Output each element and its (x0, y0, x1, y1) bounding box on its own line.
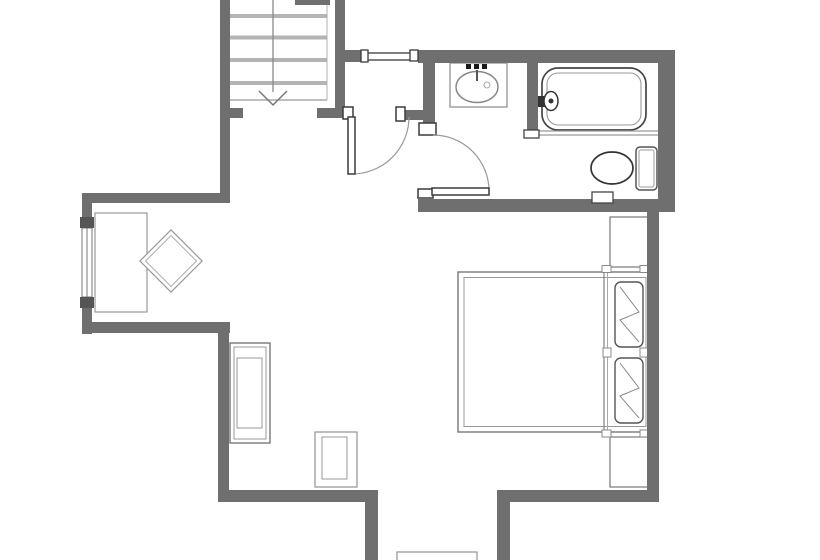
bathroom-right-wall (658, 50, 675, 212)
room-bottom-right-wall (497, 490, 659, 502)
bathroom-wall-niche (592, 192, 613, 203)
bed-tick-mid-left (603, 348, 611, 357)
bathroom-left-wall (423, 53, 435, 125)
bath-door-jamb-top (419, 123, 436, 135)
nightstand-bottom (610, 437, 648, 487)
staircase (228, 0, 327, 105)
sink-faucet-dot-1 (466, 64, 471, 69)
stair-tread-3 (228, 58, 327, 62)
tub-partition-cap (524, 130, 539, 138)
stair-top-stub-wall (295, 0, 330, 5)
alcove-bottom-wall (82, 322, 230, 333)
desk (95, 213, 147, 312)
stair-direction-arrow (259, 91, 287, 105)
bathroom-top-wall (418, 50, 675, 63)
bathroom-bottom-wall (418, 199, 675, 212)
bathroom (450, 63, 658, 190)
tub-faucet-dot (549, 99, 554, 104)
living-area (95, 213, 477, 560)
left-mid-wall (218, 330, 229, 502)
hall-door-leaf (348, 117, 355, 174)
left-wall-upper (82, 203, 92, 219)
hall-stub-wall-left (230, 108, 243, 118)
passthrough-cap-right (410, 50, 418, 61)
pillow-2-outline (615, 358, 643, 423)
chair-rotated-outer (140, 230, 202, 292)
bed-tick-bottom-left (602, 430, 611, 437)
alcove-top-wall (82, 193, 230, 203)
bath-door-leaf (432, 188, 489, 195)
hall-door-jamb-right (396, 107, 405, 121)
bedroom (458, 217, 650, 487)
stair-tread-4 (228, 81, 327, 85)
tub-partition-wall (527, 60, 538, 137)
bed-tick-mid-right (640, 348, 648, 357)
opening-left-wall (365, 490, 378, 560)
bath-door-swing-arc (433, 135, 489, 191)
toilet-bowl (591, 152, 633, 184)
room-bottom-left-wall (218, 490, 378, 502)
stair-tread-2 (228, 36, 327, 40)
entry-threshold (397, 552, 477, 560)
sink-faucet-dot-3 (482, 64, 487, 69)
window-jamb-bottom (80, 297, 94, 308)
floor-plan-drawing (0, 0, 820, 560)
bath-door-jamb-bottom (418, 189, 433, 198)
pillow-1-outline (615, 282, 643, 347)
stair-right-wall (335, 0, 345, 118)
floor-plan-stage (0, 0, 820, 560)
hall-stub-wall-right (317, 108, 345, 118)
bedroom-right-wall (647, 205, 659, 502)
sink-faucet-dot-2 (474, 64, 479, 69)
nightstand-top (610, 217, 648, 267)
window-jamb-top (80, 217, 94, 228)
bed-tick-top-left (602, 266, 611, 273)
hall-passthrough-stub-wall (345, 50, 363, 62)
stair-tread-1 (228, 14, 327, 18)
passthrough-cap-left (361, 50, 368, 62)
stair-left-wall (220, 0, 230, 203)
hall-door-swing-arc (352, 117, 409, 174)
